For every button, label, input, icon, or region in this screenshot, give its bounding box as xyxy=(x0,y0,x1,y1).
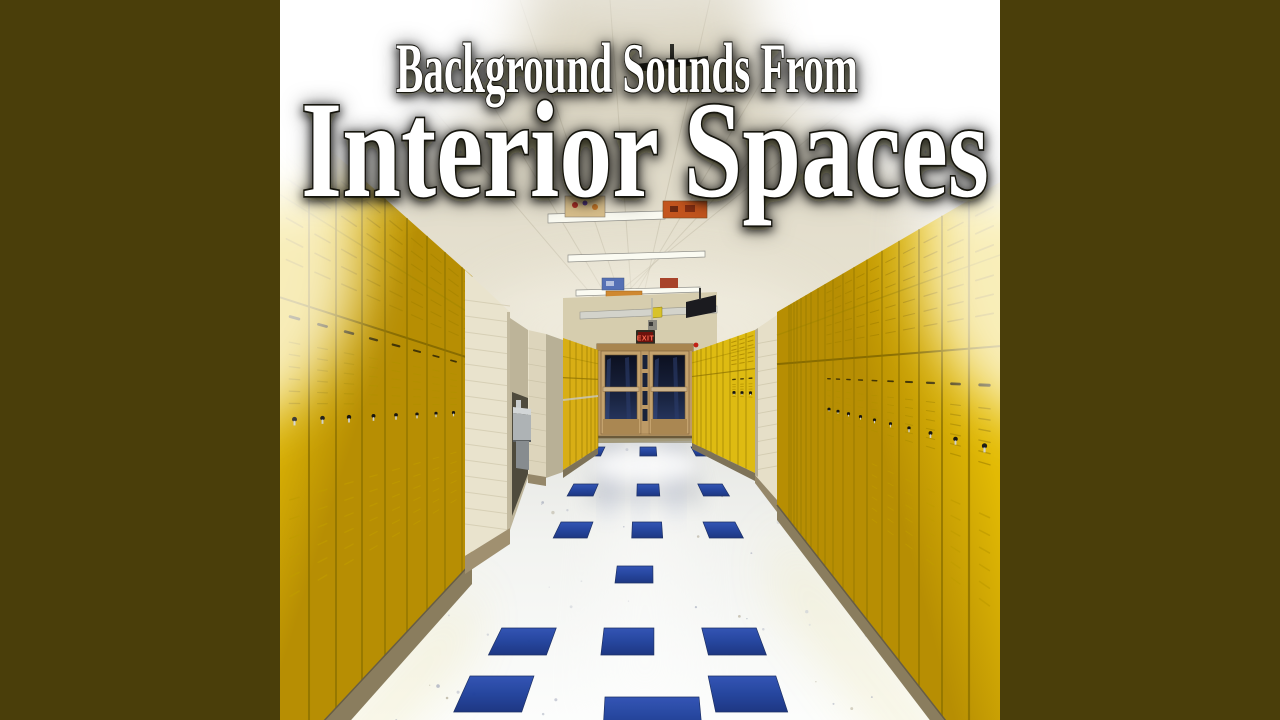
title-line-2: Interior Spaces xyxy=(301,73,989,226)
left-letterbox-bar xyxy=(0,0,280,720)
video-thumbnail: EXIT Background Sounds From Interior Spa… xyxy=(0,0,1280,720)
album-art: EXIT Background Sounds From Interior Spa… xyxy=(280,0,1000,720)
hallway-photo: EXIT Background Sounds From Interior Spa… xyxy=(280,0,1000,720)
right-letterbox-bar xyxy=(1000,0,1280,720)
exit-sign: EXIT xyxy=(637,336,655,343)
exit-sign-label: EXIT xyxy=(637,336,655,343)
